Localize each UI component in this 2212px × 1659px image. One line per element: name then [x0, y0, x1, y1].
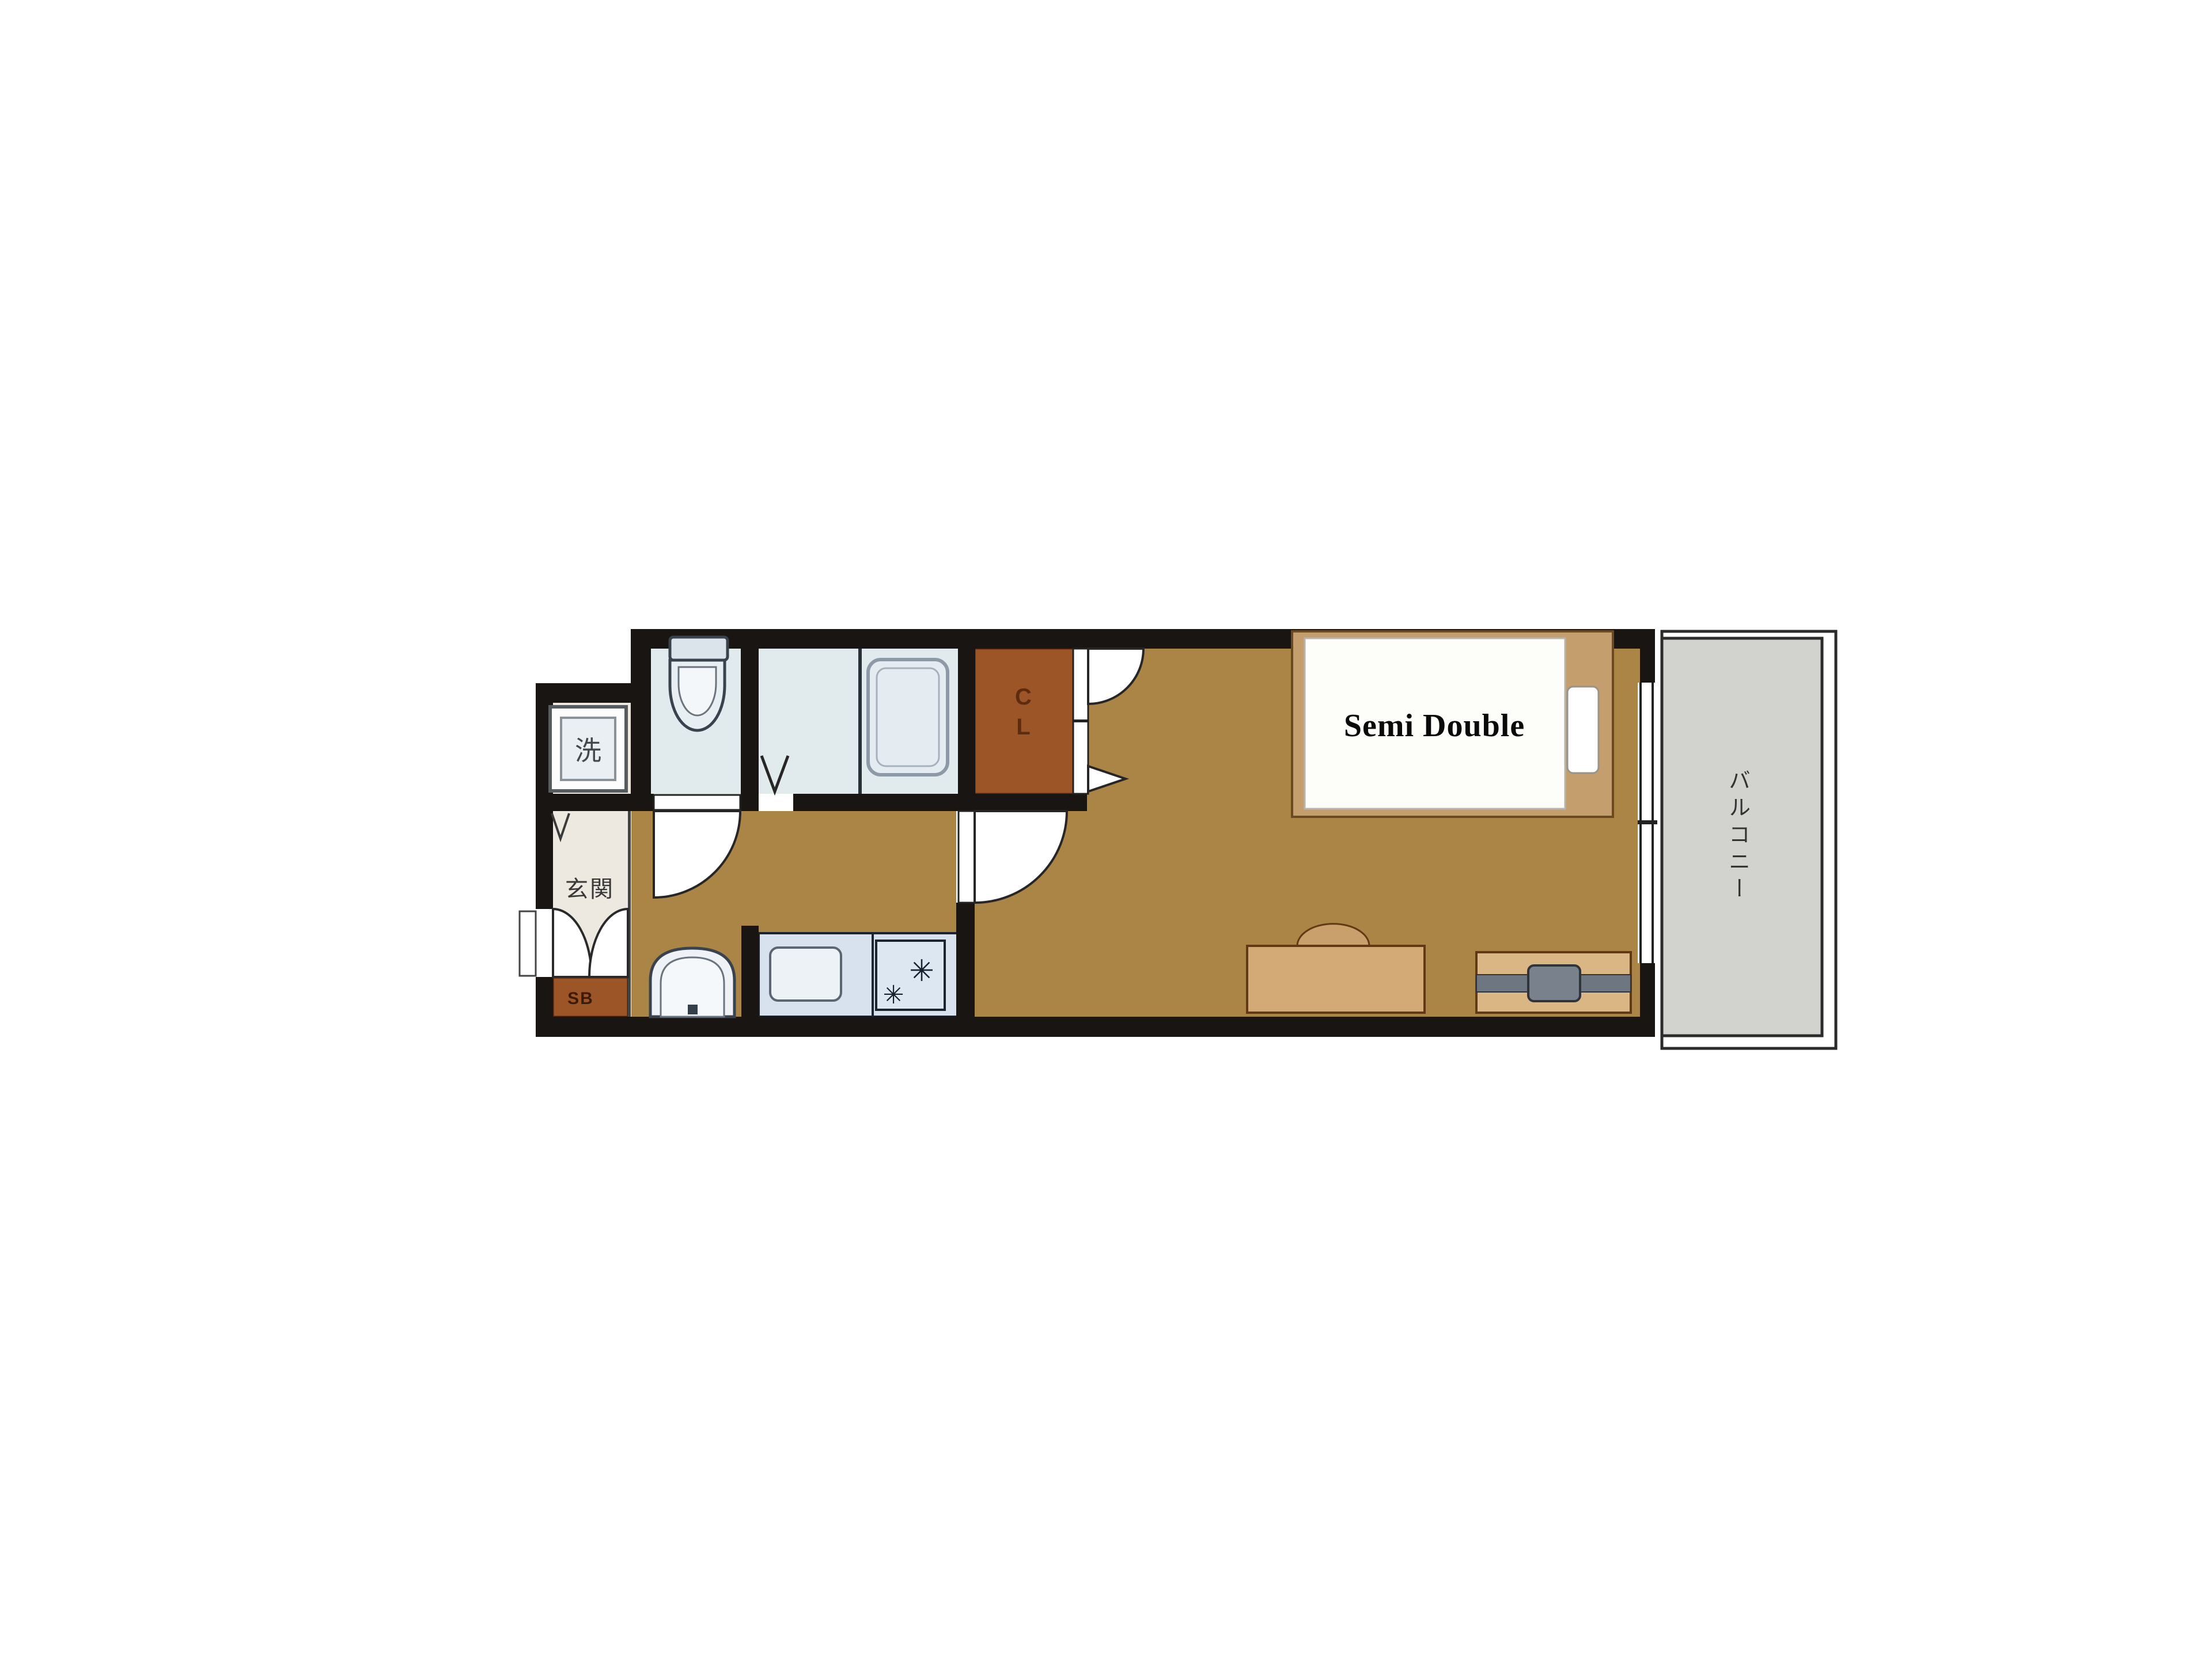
stove-burner-icon: ✳ — [883, 981, 904, 1009]
wall-right-top — [1640, 629, 1655, 683]
floor-plan-drawing: ✳ ✳ — [0, 0, 2212, 1659]
genkan-label: 玄関 — [565, 870, 615, 904]
bath-divider-line — [858, 649, 862, 794]
wall-band-left — [631, 794, 654, 811]
wall-right-bottom — [1640, 963, 1655, 1037]
wash-basin-drain — [688, 1005, 698, 1014]
wall-bath-right — [958, 629, 975, 811]
entrance-door-stub — [520, 911, 536, 976]
balcony-label: バルコニー — [1722, 769, 1753, 904]
wall-alcove-genkan — [553, 794, 634, 811]
kitchen-divider-line — [872, 933, 874, 1017]
bathtub — [868, 660, 948, 775]
wall-toilet-left — [631, 629, 651, 811]
main-room-door-leaf — [959, 811, 975, 903]
washer-label: 洗 — [575, 730, 601, 768]
bed-size-label: Semi Double — [1344, 707, 1525, 744]
toilet-tank — [670, 637, 728, 660]
wall-alcove-top — [536, 683, 634, 703]
wall-band-right — [793, 794, 1087, 811]
sliding-window-meet-tick — [1638, 820, 1657, 824]
toilet-door-leaf — [654, 795, 740, 810]
desk — [1247, 946, 1425, 1013]
floor-plan-page: ✳ ✳ 洗 玄関 SB CL Semi Double バルコニー — [0, 0, 2212, 1659]
bed-pillow — [1567, 687, 1599, 773]
tv — [1528, 965, 1580, 1001]
wall-bottom — [536, 1017, 1655, 1037]
stove-burner-icon: ✳ — [909, 955, 934, 988]
bath-doorway-gap — [759, 794, 793, 811]
wall-hall-mainroom — [956, 903, 975, 1017]
shoe-box-label: SB — [567, 989, 594, 1009]
wall-basin-kitchen — [741, 926, 759, 1017]
kitchen-sink — [770, 948, 841, 1001]
closet-door-tick — [1073, 719, 1088, 722]
closet-label: CL — [1010, 684, 1036, 744]
wall-toilet-bath — [741, 629, 759, 811]
